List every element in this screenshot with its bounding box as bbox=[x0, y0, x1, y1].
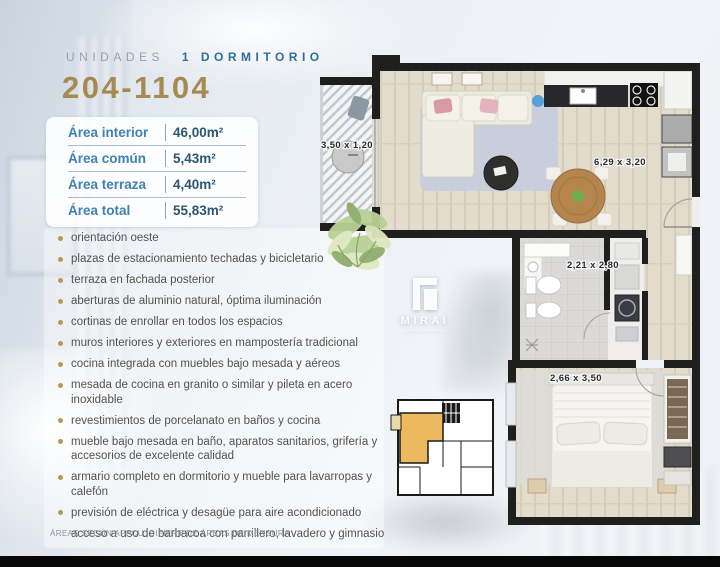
brand-tagline bbox=[404, 330, 446, 331]
pillow bbox=[556, 421, 600, 445]
dim-terraza: 3,50 x 1,20 bbox=[321, 140, 373, 151]
brand-watermark: MIRAI bbox=[392, 276, 458, 331]
column-divider bbox=[165, 176, 166, 193]
area-label: Área común bbox=[68, 151, 158, 166]
terrace-slab-edge bbox=[320, 77, 323, 231]
area-value: 46,00m² bbox=[173, 125, 223, 140]
dim-bano: 2,21 x 2,80 bbox=[567, 260, 619, 271]
wall-art bbox=[432, 73, 452, 85]
table-row: Área interior 46,00m² bbox=[68, 120, 246, 146]
series-label: UNIDADES bbox=[66, 50, 164, 64]
area-value: 55,83m² bbox=[173, 203, 223, 218]
blue-vase bbox=[532, 95, 544, 107]
area-label: Área total bbox=[68, 203, 158, 218]
dresser bbox=[664, 447, 691, 467]
pink-pillow bbox=[433, 98, 453, 114]
bidet bbox=[526, 302, 561, 318]
entry-opening bbox=[692, 197, 700, 227]
toilet bbox=[526, 276, 561, 294]
unit-range-title: 204-1104 bbox=[62, 70, 211, 106]
column-divider bbox=[165, 150, 166, 167]
dim-living: 6,29 x 3,20 bbox=[594, 157, 646, 168]
table-row: Área total 55,83m² bbox=[68, 198, 246, 223]
floor-plan: 3,50 x 1,20 6,29 x 3,20 2,21 x 2,80 2,66… bbox=[312, 55, 712, 525]
kitchen-appliance bbox=[662, 115, 692, 143]
dining-set bbox=[546, 167, 612, 226]
table-row: Área terraza 4,40m² bbox=[68, 172, 246, 198]
wall-art bbox=[462, 73, 482, 85]
bottom-border-bar bbox=[0, 556, 720, 567]
appliance-detail bbox=[668, 153, 686, 171]
bedroom bbox=[528, 373, 691, 493]
bench bbox=[664, 471, 691, 485]
area-label: Área terraza bbox=[68, 177, 158, 192]
fridge bbox=[664, 71, 692, 109]
bedroom-window bbox=[506, 441, 516, 487]
vanity bbox=[524, 243, 570, 257]
area-value: 4,40m² bbox=[173, 177, 216, 192]
stove bbox=[630, 83, 658, 107]
brochure-page: UNIDADES 1 DORMITORIO 204-1104 Área inte… bbox=[0, 0, 720, 567]
area-table: Área interior 46,00m² Área común 5,43m² … bbox=[46, 117, 258, 227]
mirai-logo-icon bbox=[410, 276, 440, 312]
closet-shelf bbox=[615, 243, 639, 259]
area-label: Área interior bbox=[68, 125, 158, 140]
column-divider bbox=[165, 202, 166, 219]
faucet bbox=[581, 89, 585, 93]
table-plant bbox=[572, 190, 584, 202]
key-plan-terrace bbox=[391, 415, 401, 430]
washbasin bbox=[528, 262, 538, 272]
column-divider bbox=[165, 124, 166, 141]
areas-disclaimer: ÁREAS SEGÚN APPCU. DIFIERE DE ÁREAS DE M… bbox=[50, 529, 290, 538]
dim-dormitorio: 2,66 x 3,50 bbox=[550, 373, 602, 384]
page-kicker: UNIDADES 1 DORMITORIO bbox=[66, 50, 324, 64]
hall-cabinet bbox=[676, 235, 692, 275]
brand-name: MIRAI bbox=[392, 315, 458, 327]
nightstand bbox=[528, 479, 546, 493]
towels bbox=[616, 327, 638, 341]
key-plan bbox=[391, 400, 493, 495]
type-label: 1 DORMITORIO bbox=[182, 50, 324, 64]
blanket bbox=[552, 451, 652, 487]
bedroom-window bbox=[506, 383, 516, 425]
table-row: Área común 5,43m² bbox=[68, 146, 246, 172]
pillow bbox=[603, 422, 647, 445]
area-value: 5,43m² bbox=[173, 151, 216, 166]
pink-pillow bbox=[479, 98, 499, 114]
